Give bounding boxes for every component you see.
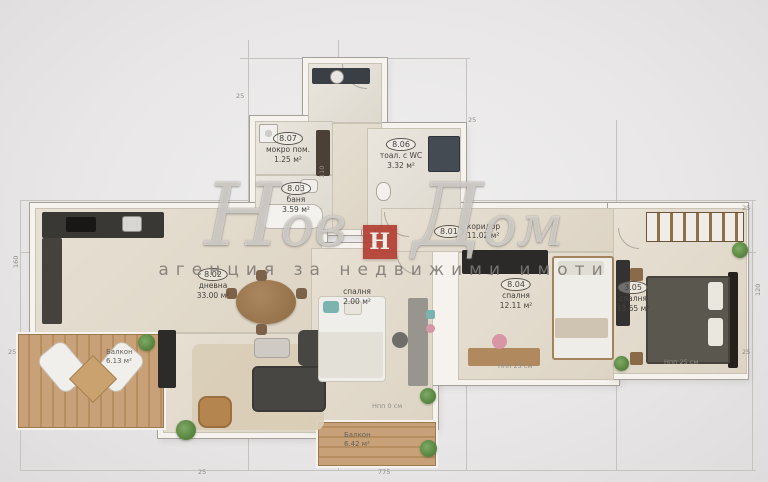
plant — [420, 388, 436, 404]
room-stamp-bedroom-mid: спалня 2.00 м² — [343, 288, 371, 306]
dimension-label: 25 — [742, 348, 750, 356]
parapet-note: Нпп 25 см — [498, 362, 532, 370]
plant — [732, 242, 748, 258]
blanket — [319, 332, 383, 378]
nightstand — [630, 352, 643, 365]
dimension-label: 775 — [378, 468, 390, 476]
pillow — [323, 301, 339, 313]
parapet-note: Нпп 0 см — [372, 402, 402, 410]
nightstand — [630, 268, 643, 281]
dimension-label: 120 — [754, 284, 762, 296]
room-stamp-living: 8.02 дневна 33.00 м² — [197, 268, 230, 300]
tv-cabinet — [158, 330, 176, 388]
room-name: тоал. с WC — [380, 152, 422, 161]
kitchen-sink — [122, 216, 142, 232]
plant — [176, 420, 196, 440]
floor-plan-image: 8.07 мокро пом. 1.25 м² 8.03 баня 3.59 м… — [0, 0, 768, 482]
kitchen-counter — [42, 212, 164, 238]
room-stamp-wc: 8.06 тоал. с WC 3.32 м² — [380, 138, 422, 170]
coffee-table — [254, 338, 290, 358]
dimension-label: 25 — [468, 116, 476, 124]
room-number: 8.02 — [198, 268, 228, 281]
shelf-deco — [426, 310, 435, 319]
room-stamp-bedroom3: 3.05 спалня 13.65 м² — [617, 281, 650, 313]
room-area: 3.59 м² — [282, 206, 310, 215]
armchair — [198, 396, 232, 428]
fridge-cabinet — [42, 238, 62, 324]
floor-balcony-bottom — [316, 420, 438, 468]
room-stamp-hallway: 8.01 коридор 11.02 м² — [434, 223, 500, 240]
room-stamp-bath: 8.03 баня 3.59 м² — [281, 182, 311, 214]
wardrobe — [462, 250, 548, 274]
desk — [408, 298, 428, 386]
plant — [420, 440, 437, 457]
room-name: спалня — [502, 292, 530, 301]
room-area: 6.13 м² — [106, 357, 133, 366]
room-area: 2.00 м² — [343, 298, 371, 307]
dimension-label: 25 — [742, 204, 750, 212]
room-number: 8.03 — [281, 182, 311, 195]
room-name: баня — [287, 196, 306, 205]
dimension-line — [752, 200, 753, 470]
room-name: Балкон — [344, 431, 371, 440]
room-name: Балкон — [106, 348, 133, 357]
room-name: спалня — [619, 295, 647, 304]
dining-chair — [256, 324, 267, 335]
deco-pink — [426, 324, 435, 333]
dimension-label: 25 — [8, 348, 16, 356]
room-name: спалня — [343, 288, 371, 297]
room-area: 11.02 м² — [467, 232, 500, 241]
dimension-label: 160 — [12, 256, 20, 268]
wardrobe — [646, 212, 744, 242]
room-number: 3.05 — [618, 281, 648, 294]
room-area: 33.00 м² — [197, 292, 230, 301]
room-area: 1.25 м² — [274, 156, 302, 165]
room-name: дневна — [199, 282, 228, 291]
room-name: мокро пом. — [266, 146, 310, 155]
plant — [138, 334, 155, 351]
parapet-note: Нпп 25 см — [664, 358, 698, 366]
cooktop — [66, 217, 96, 232]
toilet — [376, 182, 391, 201]
pillow — [708, 318, 723, 346]
room-area: 13.65 м² — [617, 305, 650, 314]
shower — [428, 136, 460, 172]
room-number: 8.07 — [273, 132, 303, 145]
balcony-bottom-label: Балкон 6.42 м² — [344, 431, 371, 449]
balcony-left-label: Балкон 6.13 м² — [106, 348, 133, 366]
dining-table — [236, 280, 296, 324]
pillow — [708, 282, 723, 310]
dimension-label: 110 — [318, 166, 326, 178]
dimension-label: 25 — [236, 92, 244, 100]
pillow — [558, 261, 604, 275]
dimension-label: 25 — [198, 468, 206, 476]
plant — [614, 356, 629, 371]
dining-chair — [256, 270, 267, 281]
room-area: 6.42 м² — [344, 440, 371, 449]
sink — [330, 70, 344, 84]
desk-chair — [492, 334, 507, 349]
room-area: 12.11 м² — [500, 302, 533, 311]
desk-chair — [392, 332, 408, 348]
dining-chair — [296, 288, 307, 299]
room-stamp-storage: 8.07 мокро пом. 1.25 м² — [266, 132, 310, 164]
room-number: 8.06 — [386, 138, 416, 151]
room-area: 3.32 м² — [387, 162, 415, 171]
sofa — [252, 366, 326, 412]
room-stamp-bedroom2: 8.04 спалня 12.11 м² — [500, 278, 533, 310]
room-number: 8.01 — [434, 225, 464, 238]
blanket — [555, 318, 608, 338]
room-number: 8.04 — [501, 278, 531, 291]
